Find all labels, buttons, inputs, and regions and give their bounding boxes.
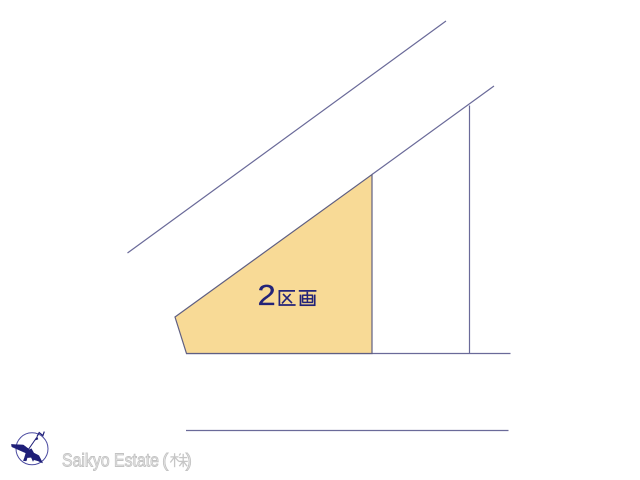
svg-text:2: 2 — [258, 280, 276, 312]
svg-text:(: ( — [162, 450, 168, 470]
svg-text:): ) — [186, 450, 192, 470]
svg-text:Saikyo Estate: Saikyo Estate — [62, 450, 159, 470]
